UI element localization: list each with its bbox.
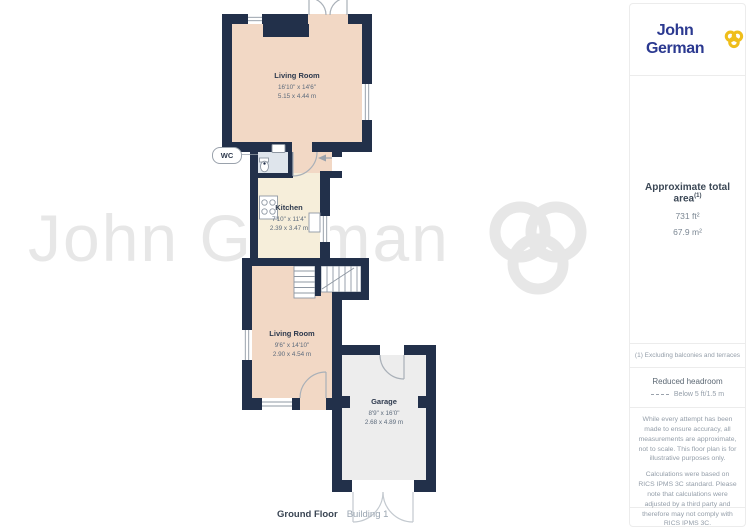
sink-icon xyxy=(272,145,285,153)
living-room-2-imperial: 9'6" x 14'10" xyxy=(275,342,310,349)
logo-section: John German xyxy=(630,4,745,76)
kitchen-imperial: 7'10" x 11'4" xyxy=(272,216,306,223)
living-room-1-imperial: 16'10" x 14'6" xyxy=(278,84,316,91)
garage-pier-right xyxy=(418,396,426,408)
french-door-opening xyxy=(308,14,348,24)
kitchen-name: Kitchen xyxy=(275,203,303,212)
garage-imperial: 8'9" x 16'0" xyxy=(368,410,399,417)
living-room-2-metric: 2.90 x 4.54 m xyxy=(273,351,311,358)
footnote-text: (1) Excluding balconies and terraces xyxy=(635,352,740,359)
area-imperial: 731 ft² xyxy=(675,211,699,221)
hall-door-opening xyxy=(292,142,312,152)
area-metric: 67.9 m² xyxy=(673,227,702,237)
building-name: Building 1 xyxy=(347,509,389,520)
floor-name: Ground Floor xyxy=(277,509,338,520)
garage-floor xyxy=(342,355,426,480)
garage-side-door-opening xyxy=(380,345,404,355)
living-room-2-name: Living Room xyxy=(269,329,315,338)
window-top xyxy=(248,14,262,24)
footnote-section: (1) Excluding balconies and terraces xyxy=(630,344,745,368)
area-footnote-marker: (1) xyxy=(694,193,701,199)
wc-partition xyxy=(288,152,293,173)
area-title: Approximate total area(1) xyxy=(630,182,745,204)
french-door-left xyxy=(309,0,326,15)
chimney-breast xyxy=(263,24,309,37)
disclaimer-section: While every attempt has been made to ens… xyxy=(630,408,745,508)
wc-label: WC xyxy=(212,147,242,164)
floor-footer: Ground Floor Building 1 xyxy=(277,509,388,520)
entrance-opening xyxy=(332,157,342,171)
kitchen-metric: 2.39 x 3.47 m xyxy=(270,225,308,232)
headroom-section: Reduced headroom Below 5 ft/1.5 m xyxy=(630,368,745,408)
disclaimer-paragraph-1: While every attempt has been made to ens… xyxy=(638,415,737,464)
info-sidebar: John German Approximate total area(1) 73… xyxy=(629,3,746,527)
dashed-line-icon xyxy=(651,394,669,395)
floorplan-page: John German xyxy=(0,0,750,530)
kitchen-counter-icon xyxy=(309,213,320,232)
garage-door-opening xyxy=(352,480,414,492)
headroom-legend: Below 5 ft/1.5 m xyxy=(674,391,724,398)
garage-pier-left xyxy=(342,396,350,408)
window-living1-right xyxy=(362,84,372,120)
living-room-1-name: Living Room xyxy=(274,71,320,80)
wc-label-text: WC xyxy=(221,151,234,160)
headroom-title: Reduced headroom xyxy=(652,377,722,386)
logo-flower-icon xyxy=(723,29,745,50)
garage-name: Garage xyxy=(371,397,397,406)
window-living2-bottom xyxy=(262,398,292,410)
logo-text: John German xyxy=(630,22,720,58)
garage-metric: 2.68 x 4.89 m xyxy=(365,419,403,426)
rear-door-opening xyxy=(300,398,326,410)
french-door-right xyxy=(330,0,347,15)
window-kitchen xyxy=(320,216,330,242)
window-living2-left xyxy=(242,330,252,360)
living-room-1-metric: 5.15 x 4.44 m xyxy=(278,93,316,100)
total-area-section: Approximate total area(1) 731 ft² 67.9 m… xyxy=(630,76,745,344)
living-room-1-floor xyxy=(232,24,362,142)
empty-section xyxy=(630,508,745,526)
